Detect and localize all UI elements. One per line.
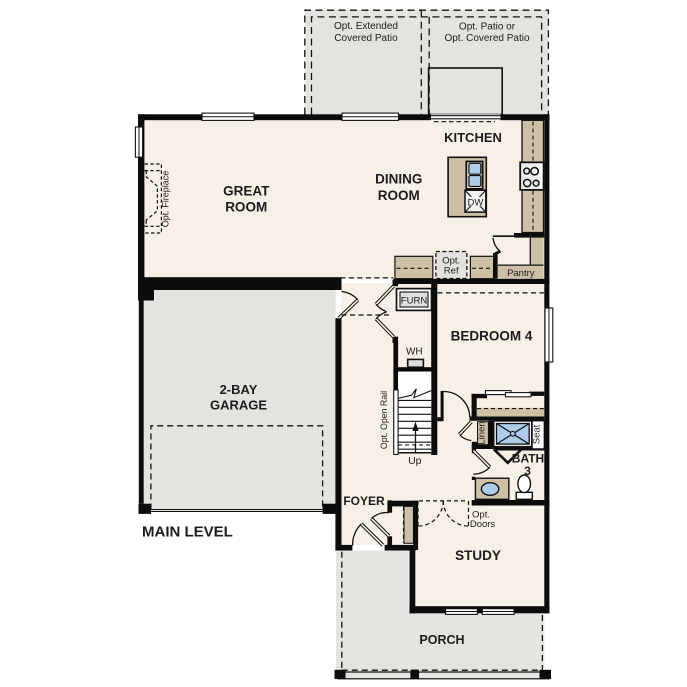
svg-text:Opt. Open Rail: Opt. Open Rail: [379, 391, 389, 449]
svg-text:DW: DW: [467, 197, 483, 208]
svg-text:KITCHEN: KITCHEN: [444, 130, 502, 145]
svg-text:PORCH: PORCH: [419, 633, 464, 647]
svg-text:MAIN LEVEL: MAIN LEVEL: [142, 524, 233, 541]
svg-text:3: 3: [524, 464, 531, 478]
svg-text:Linen: Linen: [477, 421, 488, 444]
svg-text:Covered Patio: Covered Patio: [334, 33, 398, 44]
svg-text:WH: WH: [406, 346, 423, 357]
svg-text:BEDROOM 4: BEDROOM 4: [451, 329, 533, 344]
svg-text:Up: Up: [408, 455, 422, 467]
svg-text:Opt. Covered Patio: Opt. Covered Patio: [444, 33, 529, 44]
svg-text:Opt. Fireplace: Opt. Fireplace: [161, 171, 171, 228]
svg-text:FURN: FURN: [401, 295, 428, 306]
svg-text:DINING: DINING: [375, 172, 422, 187]
svg-text:2-BAY: 2-BAY: [220, 382, 258, 397]
svg-text:Seat: Seat: [532, 424, 543, 444]
svg-text:Doors: Doors: [470, 519, 496, 530]
svg-text:ROOM: ROOM: [225, 199, 267, 214]
svg-text:FOYER: FOYER: [343, 494, 385, 508]
svg-text:Opt. Extended: Opt. Extended: [334, 21, 398, 32]
svg-text:GARAGE: GARAGE: [210, 397, 267, 412]
svg-text:STUDY: STUDY: [455, 548, 501, 563]
svg-text:ROOM: ROOM: [378, 188, 420, 203]
svg-text:Ref: Ref: [444, 265, 459, 276]
svg-text:Opt. Patio or: Opt. Patio or: [459, 21, 516, 32]
svg-text:GREAT: GREAT: [223, 183, 270, 198]
svg-text:Pantry: Pantry: [507, 268, 535, 279]
